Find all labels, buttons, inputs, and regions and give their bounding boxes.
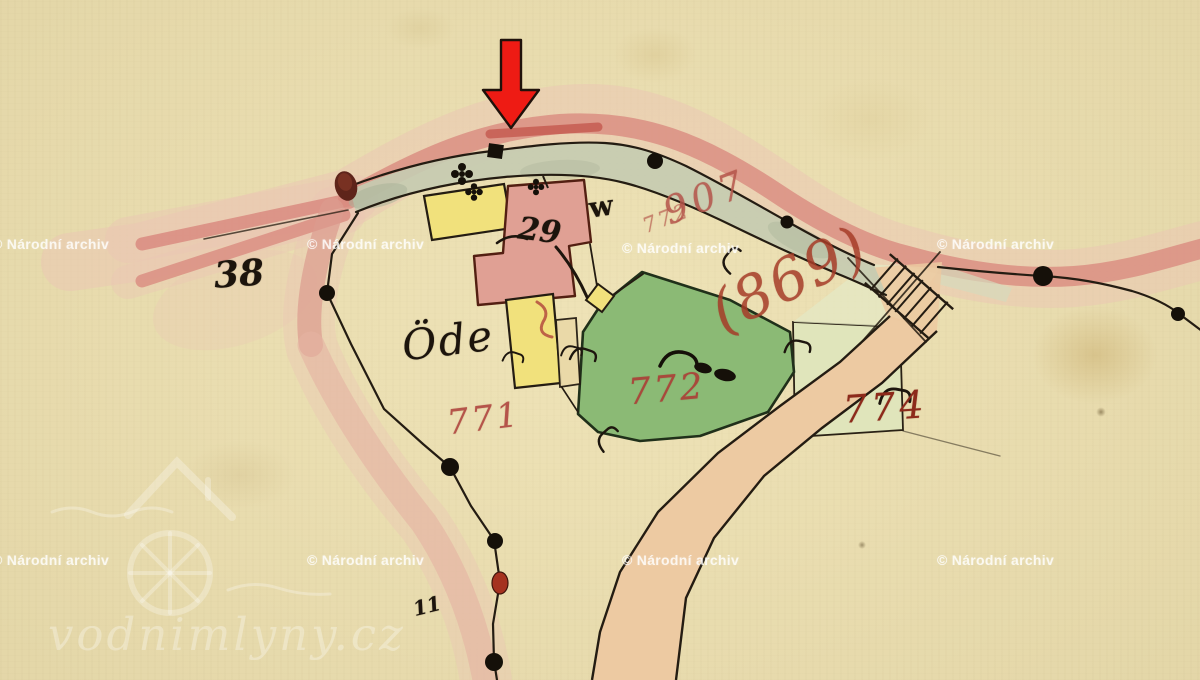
stone-dot: [485, 653, 503, 671]
water-wave-left: [52, 508, 172, 516]
stone-dot: [487, 533, 503, 549]
stone-dot: [1033, 266, 1053, 286]
stone-dot: [647, 153, 663, 169]
stone-dot: [441, 458, 459, 476]
watermill-logo-icon: [52, 462, 330, 613]
map-canvas: 38 29 w Öde 11 907 772 (869) 771 772 774…: [0, 0, 1200, 680]
water-wave-right: [228, 584, 330, 594]
mill-wheel-spokes: [130, 533, 210, 613]
building-yellow-south: [506, 294, 561, 388]
red-boundary-stone: [492, 572, 508, 594]
parcel-774-tail-line: [903, 431, 1000, 456]
stone-dot: [1171, 307, 1185, 321]
stone-dot: [781, 216, 794, 229]
stone-square-at-arrow: [487, 143, 504, 159]
map-drawing: [0, 0, 1200, 680]
hook-mark: [720, 246, 741, 275]
fence-line-1: [590, 244, 597, 286]
stone-dot: [319, 285, 335, 301]
fence-line-3: [561, 386, 578, 412]
building-outline-cream: [556, 318, 580, 387]
